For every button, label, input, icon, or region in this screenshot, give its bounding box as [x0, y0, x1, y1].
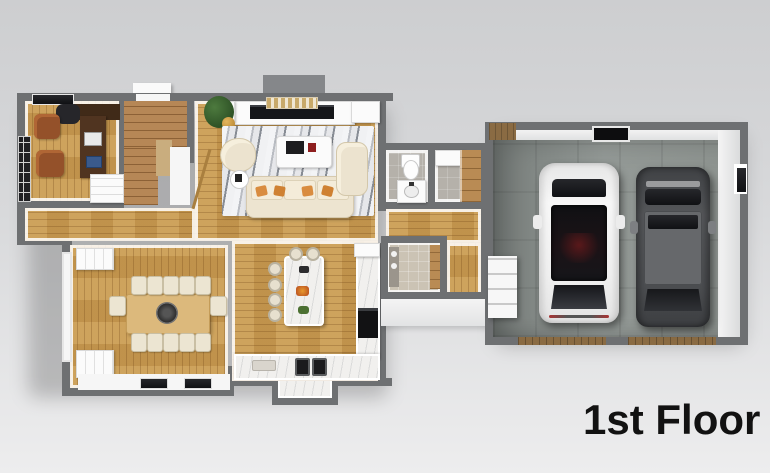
car-rear-trim [646, 181, 700, 187]
garage-inner-wall-face [718, 130, 740, 337]
wall-strip-top [386, 143, 488, 150]
garage-door-threshold [628, 337, 716, 345]
office-french-door [18, 136, 31, 202]
car-mirror [533, 215, 542, 229]
coffee-table [276, 136, 332, 168]
table-centerpiece [156, 302, 178, 324]
dining-chair [179, 333, 195, 352]
dining-chair [131, 276, 147, 295]
bar-stool [306, 247, 320, 261]
dryer-dot [391, 263, 397, 269]
sink-basin [295, 358, 310, 376]
garage-shelf [489, 123, 516, 140]
garage-door-threshold [518, 337, 606, 345]
stairs-landing [170, 147, 190, 205]
car-interior-tint [557, 233, 601, 263]
coffee-table-decor [308, 143, 316, 152]
armchair [36, 150, 64, 177]
food-dish [296, 286, 309, 296]
white-car [539, 163, 619, 323]
hallway-floor [447, 243, 481, 299]
gray-car [636, 167, 710, 327]
faucet [409, 182, 414, 186]
notebook [86, 156, 102, 168]
foyer-floor [25, 208, 195, 241]
front-door [136, 94, 170, 101]
office-closet [90, 174, 124, 203]
floor-title: 1st Floor [583, 396, 760, 444]
car-sunroof [648, 215, 698, 229]
side-table-decor [235, 174, 242, 182]
stairs-lower-flight [124, 147, 158, 205]
dining-chair [147, 276, 163, 295]
dining-chair [163, 333, 179, 352]
car-rear-window [645, 189, 701, 205]
bay-window [140, 378, 168, 389]
accent-chair [220, 138, 256, 172]
wall-laundry-bottom [381, 292, 488, 299]
kitchen-cabinet [354, 243, 380, 257]
throw-pillow [273, 185, 286, 197]
laundry-counter [430, 245, 440, 289]
garage-wall-right [740, 122, 748, 345]
dining-chair [131, 333, 147, 352]
attic-hatch [592, 126, 630, 142]
bar-stool [268, 293, 282, 307]
washer-dot [391, 251, 397, 257]
car-mirror [708, 221, 716, 234]
wall-strip-mid [378, 202, 488, 209]
dining-chair [163, 276, 179, 295]
dining-side-windows [62, 252, 72, 362]
counter-decor [252, 360, 276, 371]
bar-stool [268, 262, 282, 276]
dining-chair [210, 296, 227, 316]
wall-bath-closet [428, 150, 435, 205]
exterior-wall-face [381, 299, 488, 326]
bar-stool [268, 308, 282, 322]
closet-shelving [460, 150, 481, 202]
wall-laundry-right [440, 236, 447, 299]
armchair [34, 114, 60, 139]
coffee-table-tray [286, 141, 304, 154]
wall-laundry-top [381, 236, 447, 243]
wall-laundry-left [381, 236, 388, 299]
dining-chair [195, 276, 211, 295]
car-mirror [630, 221, 638, 234]
vanity-sink [404, 185, 419, 198]
office-desk [80, 116, 106, 178]
bay-window [184, 378, 212, 389]
kitchen-bay-nook [278, 378, 332, 398]
dining-chair [195, 333, 211, 352]
dining-chair [147, 333, 163, 352]
wall-oven [358, 308, 378, 338]
buffet-cabinet [76, 248, 114, 270]
throw-pillow [301, 185, 313, 196]
food-greens [298, 306, 309, 314]
chaise [336, 142, 368, 196]
laptop [84, 132, 102, 146]
sink-basin [312, 358, 327, 376]
dining-chair [179, 276, 195, 295]
bar-stool [268, 278, 282, 292]
dining-chair [109, 296, 126, 316]
mantel-decor [266, 97, 318, 109]
island-decor [299, 266, 309, 273]
car-windshield [644, 289, 702, 311]
toilet-bowl [403, 160, 419, 180]
car-front-trim [549, 315, 609, 318]
kitchen-counter-right [356, 247, 380, 359]
car-windshield [551, 285, 607, 309]
car-rear-window [552, 179, 606, 197]
garage-window [736, 167, 747, 193]
car-mirror [616, 215, 625, 229]
floor-plan-render: 1st Floor [0, 0, 770, 473]
bar-stool [289, 247, 303, 261]
garage-entry-steps [488, 256, 517, 318]
side-cabinet [351, 101, 380, 123]
